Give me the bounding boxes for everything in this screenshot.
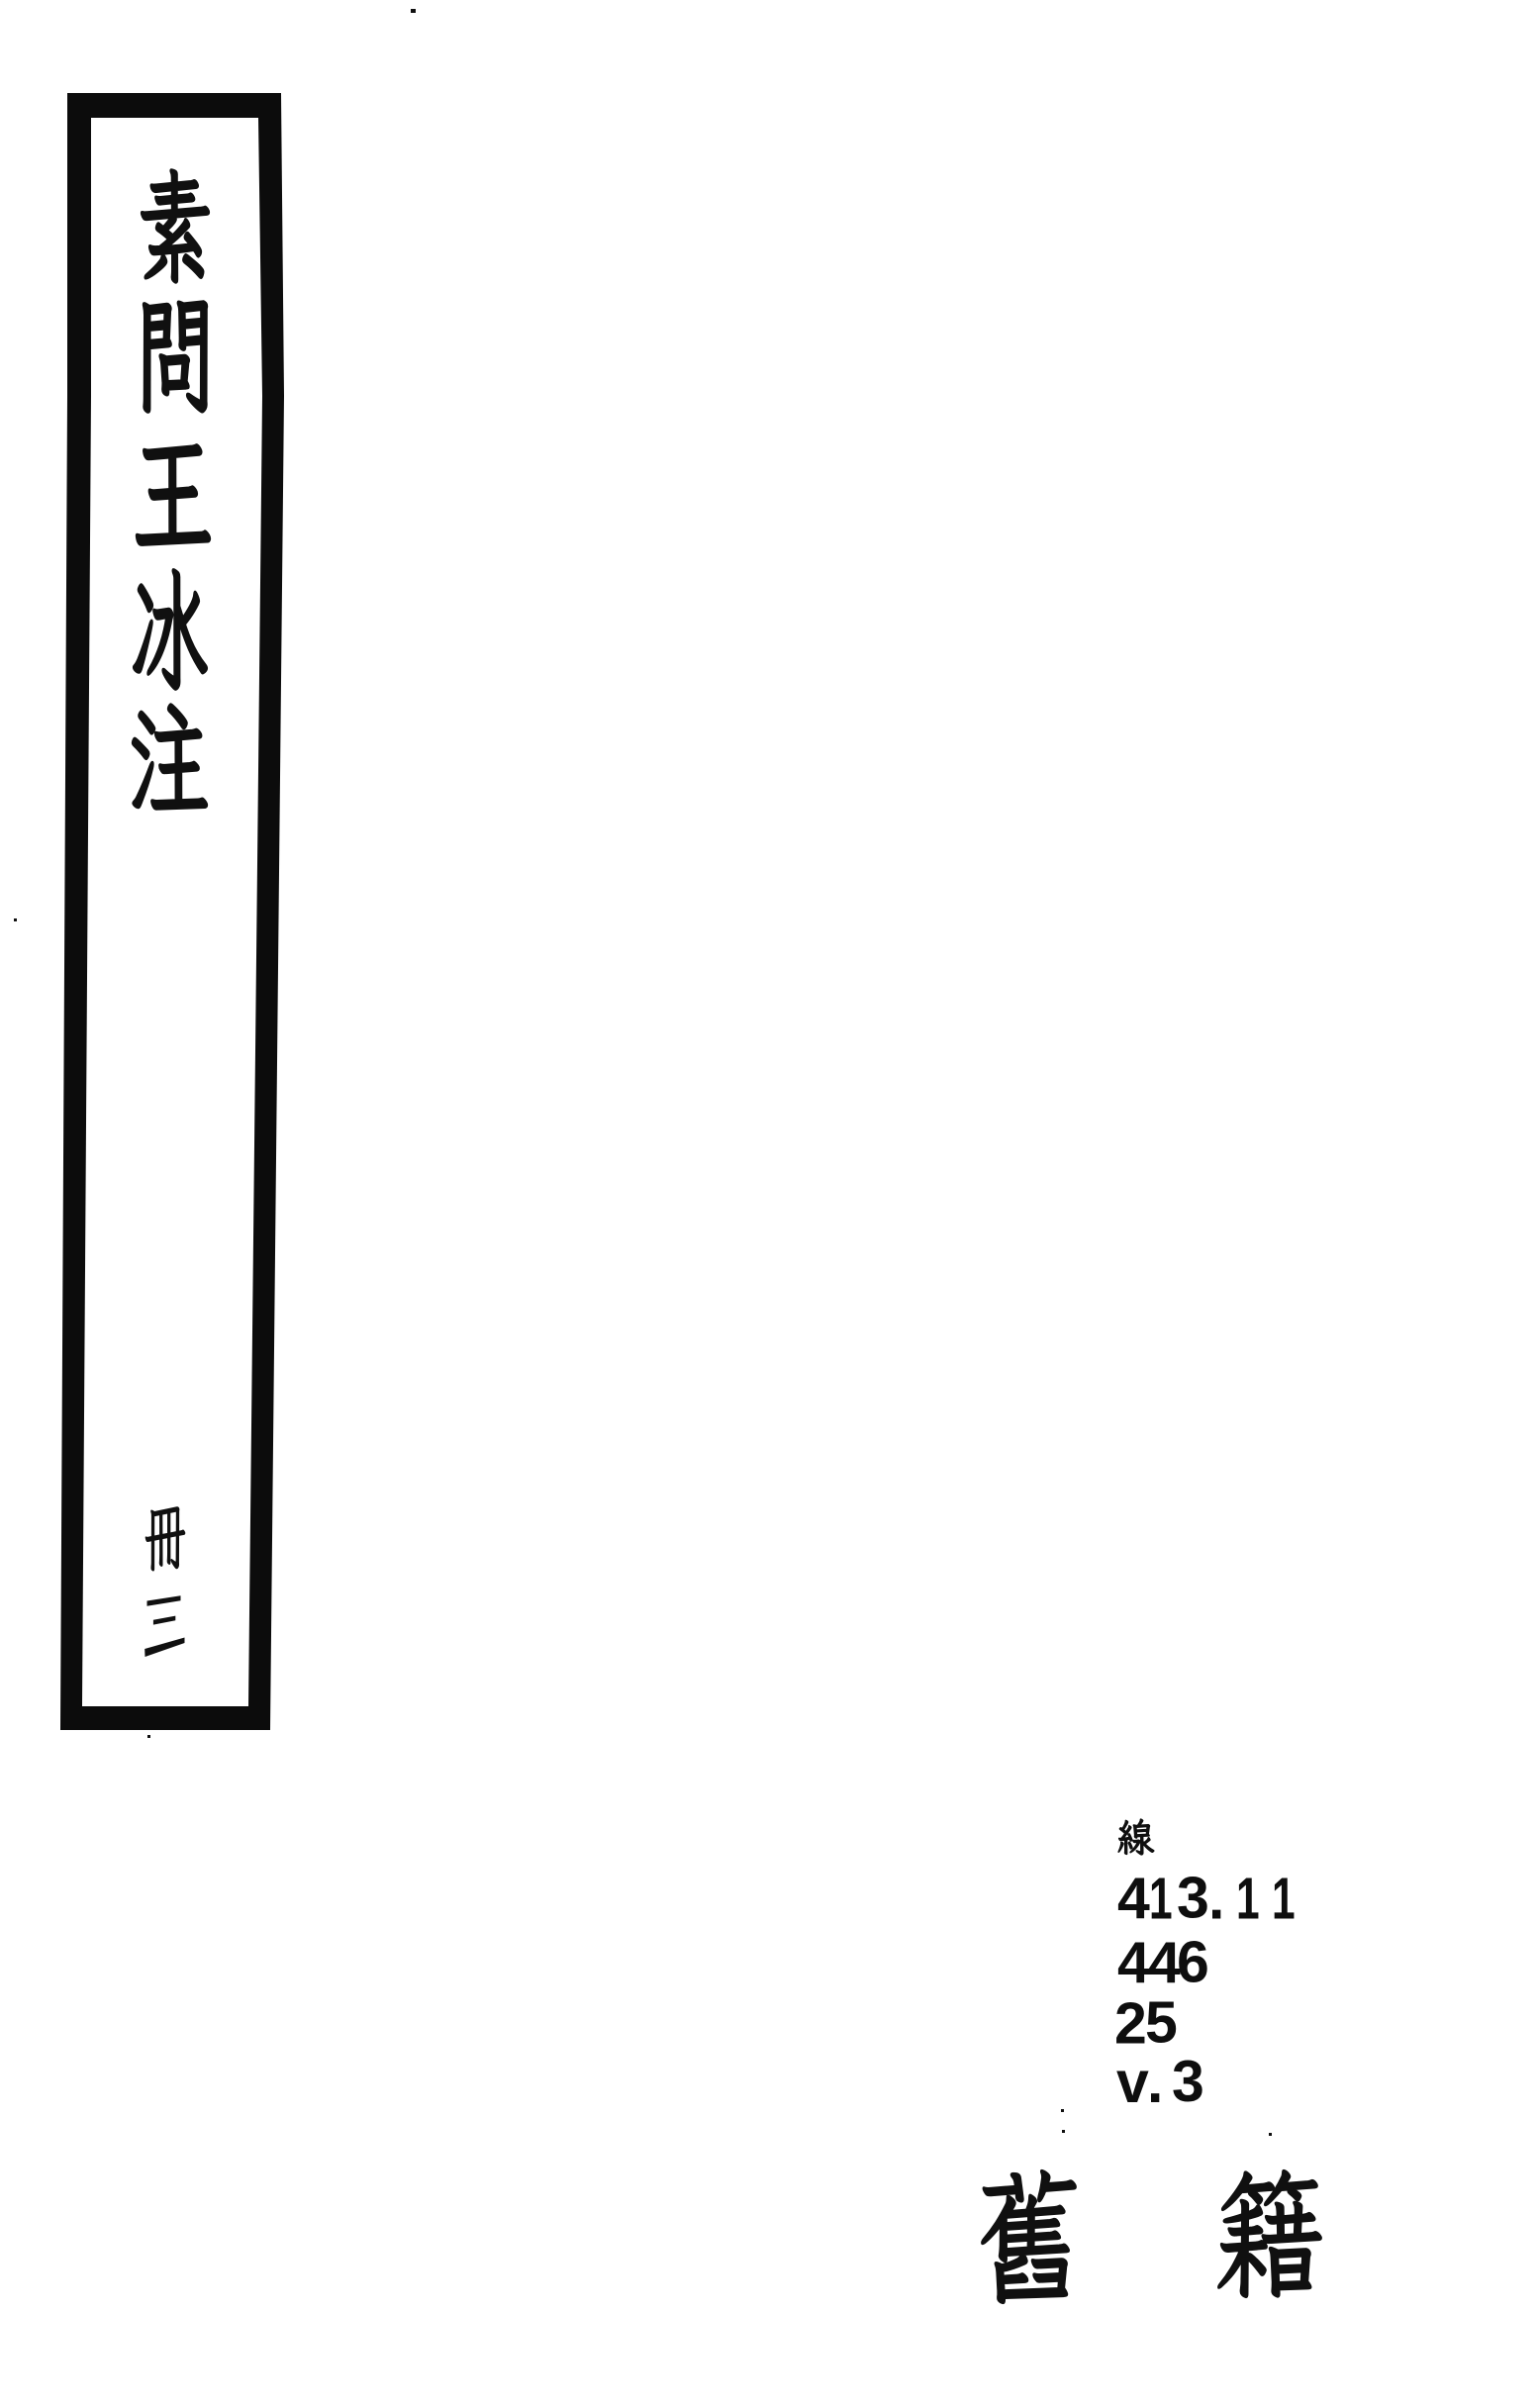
svg-text:6: 6 (1177, 1930, 1209, 1995)
svg-text:v: v (1116, 2050, 1149, 2115)
svg-text:4: 4 (1117, 1867, 1150, 1932)
svg-text:2: 2 (1114, 1991, 1147, 2057)
svg-text:3: 3 (1177, 1866, 1209, 1931)
svg-text:1: 1 (1272, 1866, 1296, 1932)
svg-text:1: 1 (1149, 1866, 1173, 1932)
svg-text:.: . (1208, 1867, 1224, 1932)
svg-text:.: . (1147, 2050, 1163, 2115)
svg-text:3: 3 (1172, 2049, 1204, 2114)
svg-text:1: 1 (1236, 1866, 1260, 1932)
svg-text:4: 4 (1117, 1931, 1150, 1996)
svg-text:5: 5 (1145, 1990, 1178, 2056)
